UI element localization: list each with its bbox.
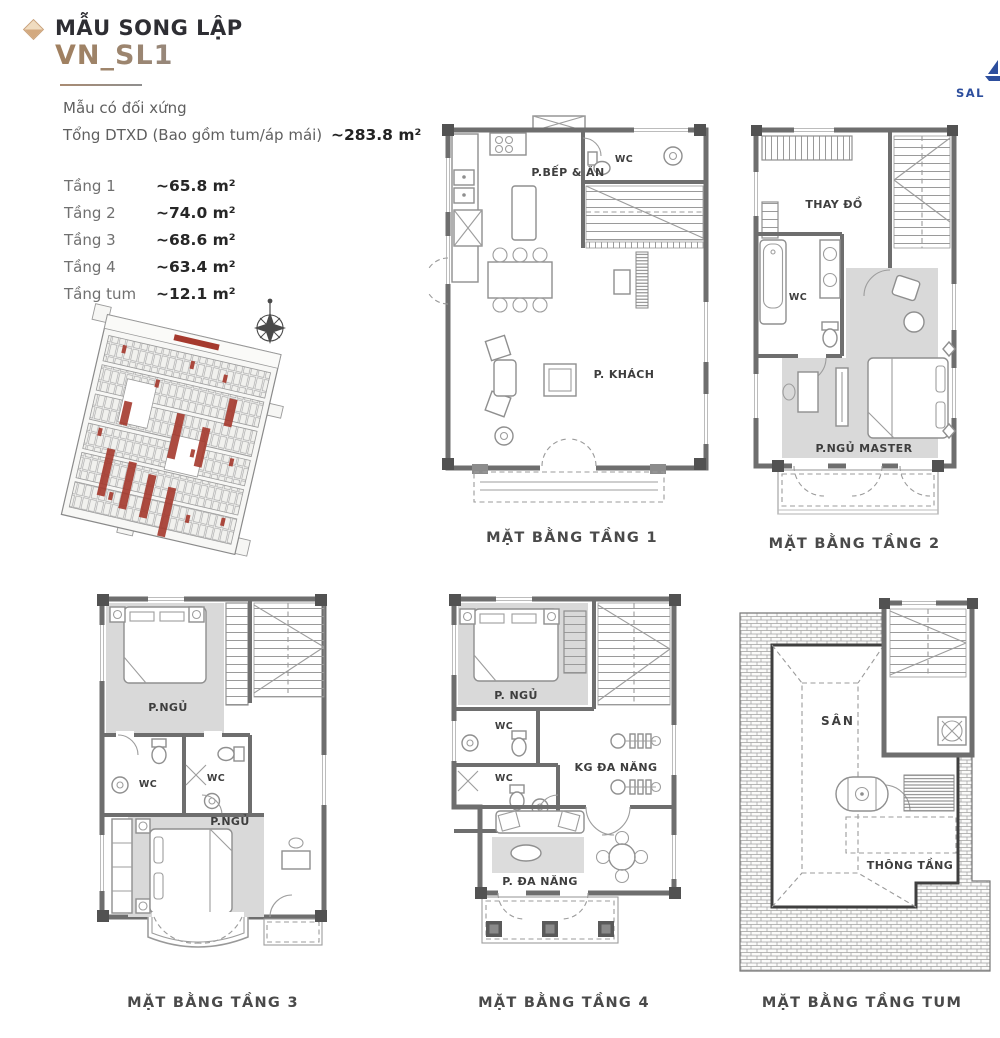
room-label: WC [789, 292, 807, 303]
room-label: KG ĐA NĂNG [575, 761, 658, 774]
floor-plan-1-svg: P.BẾP & ĂN WC P. KHÁCH [428, 112, 716, 512]
floor-plan-tang-3: P.NGỦ WC WC P.NGỦ MẶT BẰNG TẦNG 3 [88, 585, 338, 1011]
site-plan-svg [52, 294, 302, 564]
header: MẪU SONG LẬP VN_SL1 [24, 16, 243, 73]
symmetry-note: Mẫu có đối xứng [63, 99, 187, 117]
floor-plan-tang-4: P. NGỦ WC WC KG ĐA NĂNG P. ĐA NĂNG MẶT B… [440, 585, 688, 1011]
bedroom-furniture [460, 609, 586, 681]
table-row: Tầng 2 ~74.0 m² [64, 199, 236, 226]
room-label: THAY ĐỒ [805, 196, 862, 211]
floor-area-value: ~74.0 m² [156, 204, 236, 222]
room-label: WC [139, 779, 157, 790]
floor-label: Tầng 1 [64, 177, 156, 195]
model-code: VN_SL1 [55, 40, 243, 72]
floor-label: Tầng 3 [64, 231, 156, 249]
floor-plan-2-svg: THAY ĐỒ WC P.NGỦ MASTER [742, 116, 967, 526]
floor-plan-tang-2: THAY ĐỒ WC P.NGỦ MASTER MẶT BẰNG TẦNG 2 [742, 116, 967, 552]
stairs [594, 599, 670, 709]
master-plan-grid [52, 304, 296, 563]
terrace [482, 889, 618, 943]
brand-logo: SAL [956, 58, 1000, 101]
plan-caption: MẶT BẰNG TẦNG 1 [486, 530, 658, 546]
plan-caption: MẶT BẰNG TẦNG 4 [478, 995, 650, 1011]
page-title: MẪU SONG LẬP [55, 16, 243, 40]
terrace-equipment [836, 775, 954, 811]
compass-rose-icon [254, 299, 286, 344]
brochure-page: MẪU SONG LẬP VN_SL1 Mẫu có đối xứng Tổng… [0, 0, 1000, 1038]
floor-label: Tầng 2 [64, 204, 156, 222]
plan-caption: MẶT BẰNG TẦNG 3 [127, 995, 299, 1011]
floor-area-table: Tầng 1 ~65.8 m² Tầng 2 ~74.0 m² Tầng 3 ~… [64, 172, 236, 307]
stair-room [879, 598, 978, 755]
floor-area-value: ~65.8 m² [156, 177, 236, 195]
floor-label: Tầng 4 [64, 258, 156, 276]
plan-caption: MẶT BẰNG TẦNG TUM [762, 995, 962, 1011]
total-area-value: ~283.8 m² [331, 126, 421, 144]
floor-plan-3-svg: P.NGỦ WC WC P.NGỦ [88, 585, 338, 993]
terrace [264, 919, 322, 945]
total-area-line: Tổng DTXD (Bao gồm tum/áp mái) ~283.8 m² [63, 126, 421, 144]
room-label: P.NGỦ [210, 814, 249, 828]
table-row: Tầng 4 ~63.4 m² [64, 253, 236, 280]
floor-area-value: ~68.6 m² [156, 231, 236, 249]
void-area [846, 817, 956, 853]
floor-plan-tang-1: P.BẾP & ĂN WC P. KHÁCH MẶT BẰNG TẦNG 1 [428, 112, 716, 546]
plan-caption: MẶT BẰNG TẦNG 2 [769, 536, 941, 552]
total-area-label: Tổng DTXD (Bao gồm tum/áp mái) [63, 126, 322, 144]
table-row: Tầng 1 ~65.8 m² [64, 172, 236, 199]
room-label: P. KHÁCH [594, 368, 655, 381]
room-label: WC [495, 773, 513, 784]
title-divider [60, 84, 142, 86]
room-label: P.NGỦ [148, 700, 187, 714]
floor-plan-tum-svg: SÂN THÔNG TẦNG [724, 585, 1000, 993]
room-label: WC [207, 773, 225, 784]
site-plan-map [52, 294, 302, 568]
room-label: P. ĐA NĂNG [502, 875, 578, 888]
room-label: P.NGỦ MASTER [816, 441, 913, 455]
room-label: WC [495, 721, 513, 732]
table-row: Tầng 3 ~68.6 m² [64, 226, 236, 253]
stairs [250, 599, 324, 703]
room-label: WC [615, 154, 633, 165]
floor-plan-4-svg: P. NGỦ WC WC KG ĐA NĂNG P. ĐA NĂNG [440, 585, 688, 993]
room-label: P. NGỦ [494, 688, 538, 702]
room-label: SÂN [821, 713, 855, 728]
floor-plan-tang-tum: SÂN THÔNG TẦNG MẶT BẰNG TẦNG TUM [724, 585, 1000, 1011]
balcony [772, 460, 944, 514]
sail-logo-icon [984, 58, 1000, 82]
bay-window [148, 912, 248, 947]
floor-area-value: ~63.4 m² [156, 258, 236, 276]
room-label: THÔNG TẦNG [867, 858, 953, 872]
diamond-icon [23, 19, 44, 40]
room-label: P.BẾP & ĂN [531, 164, 604, 179]
brand-partial-text: SAL [956, 86, 985, 100]
